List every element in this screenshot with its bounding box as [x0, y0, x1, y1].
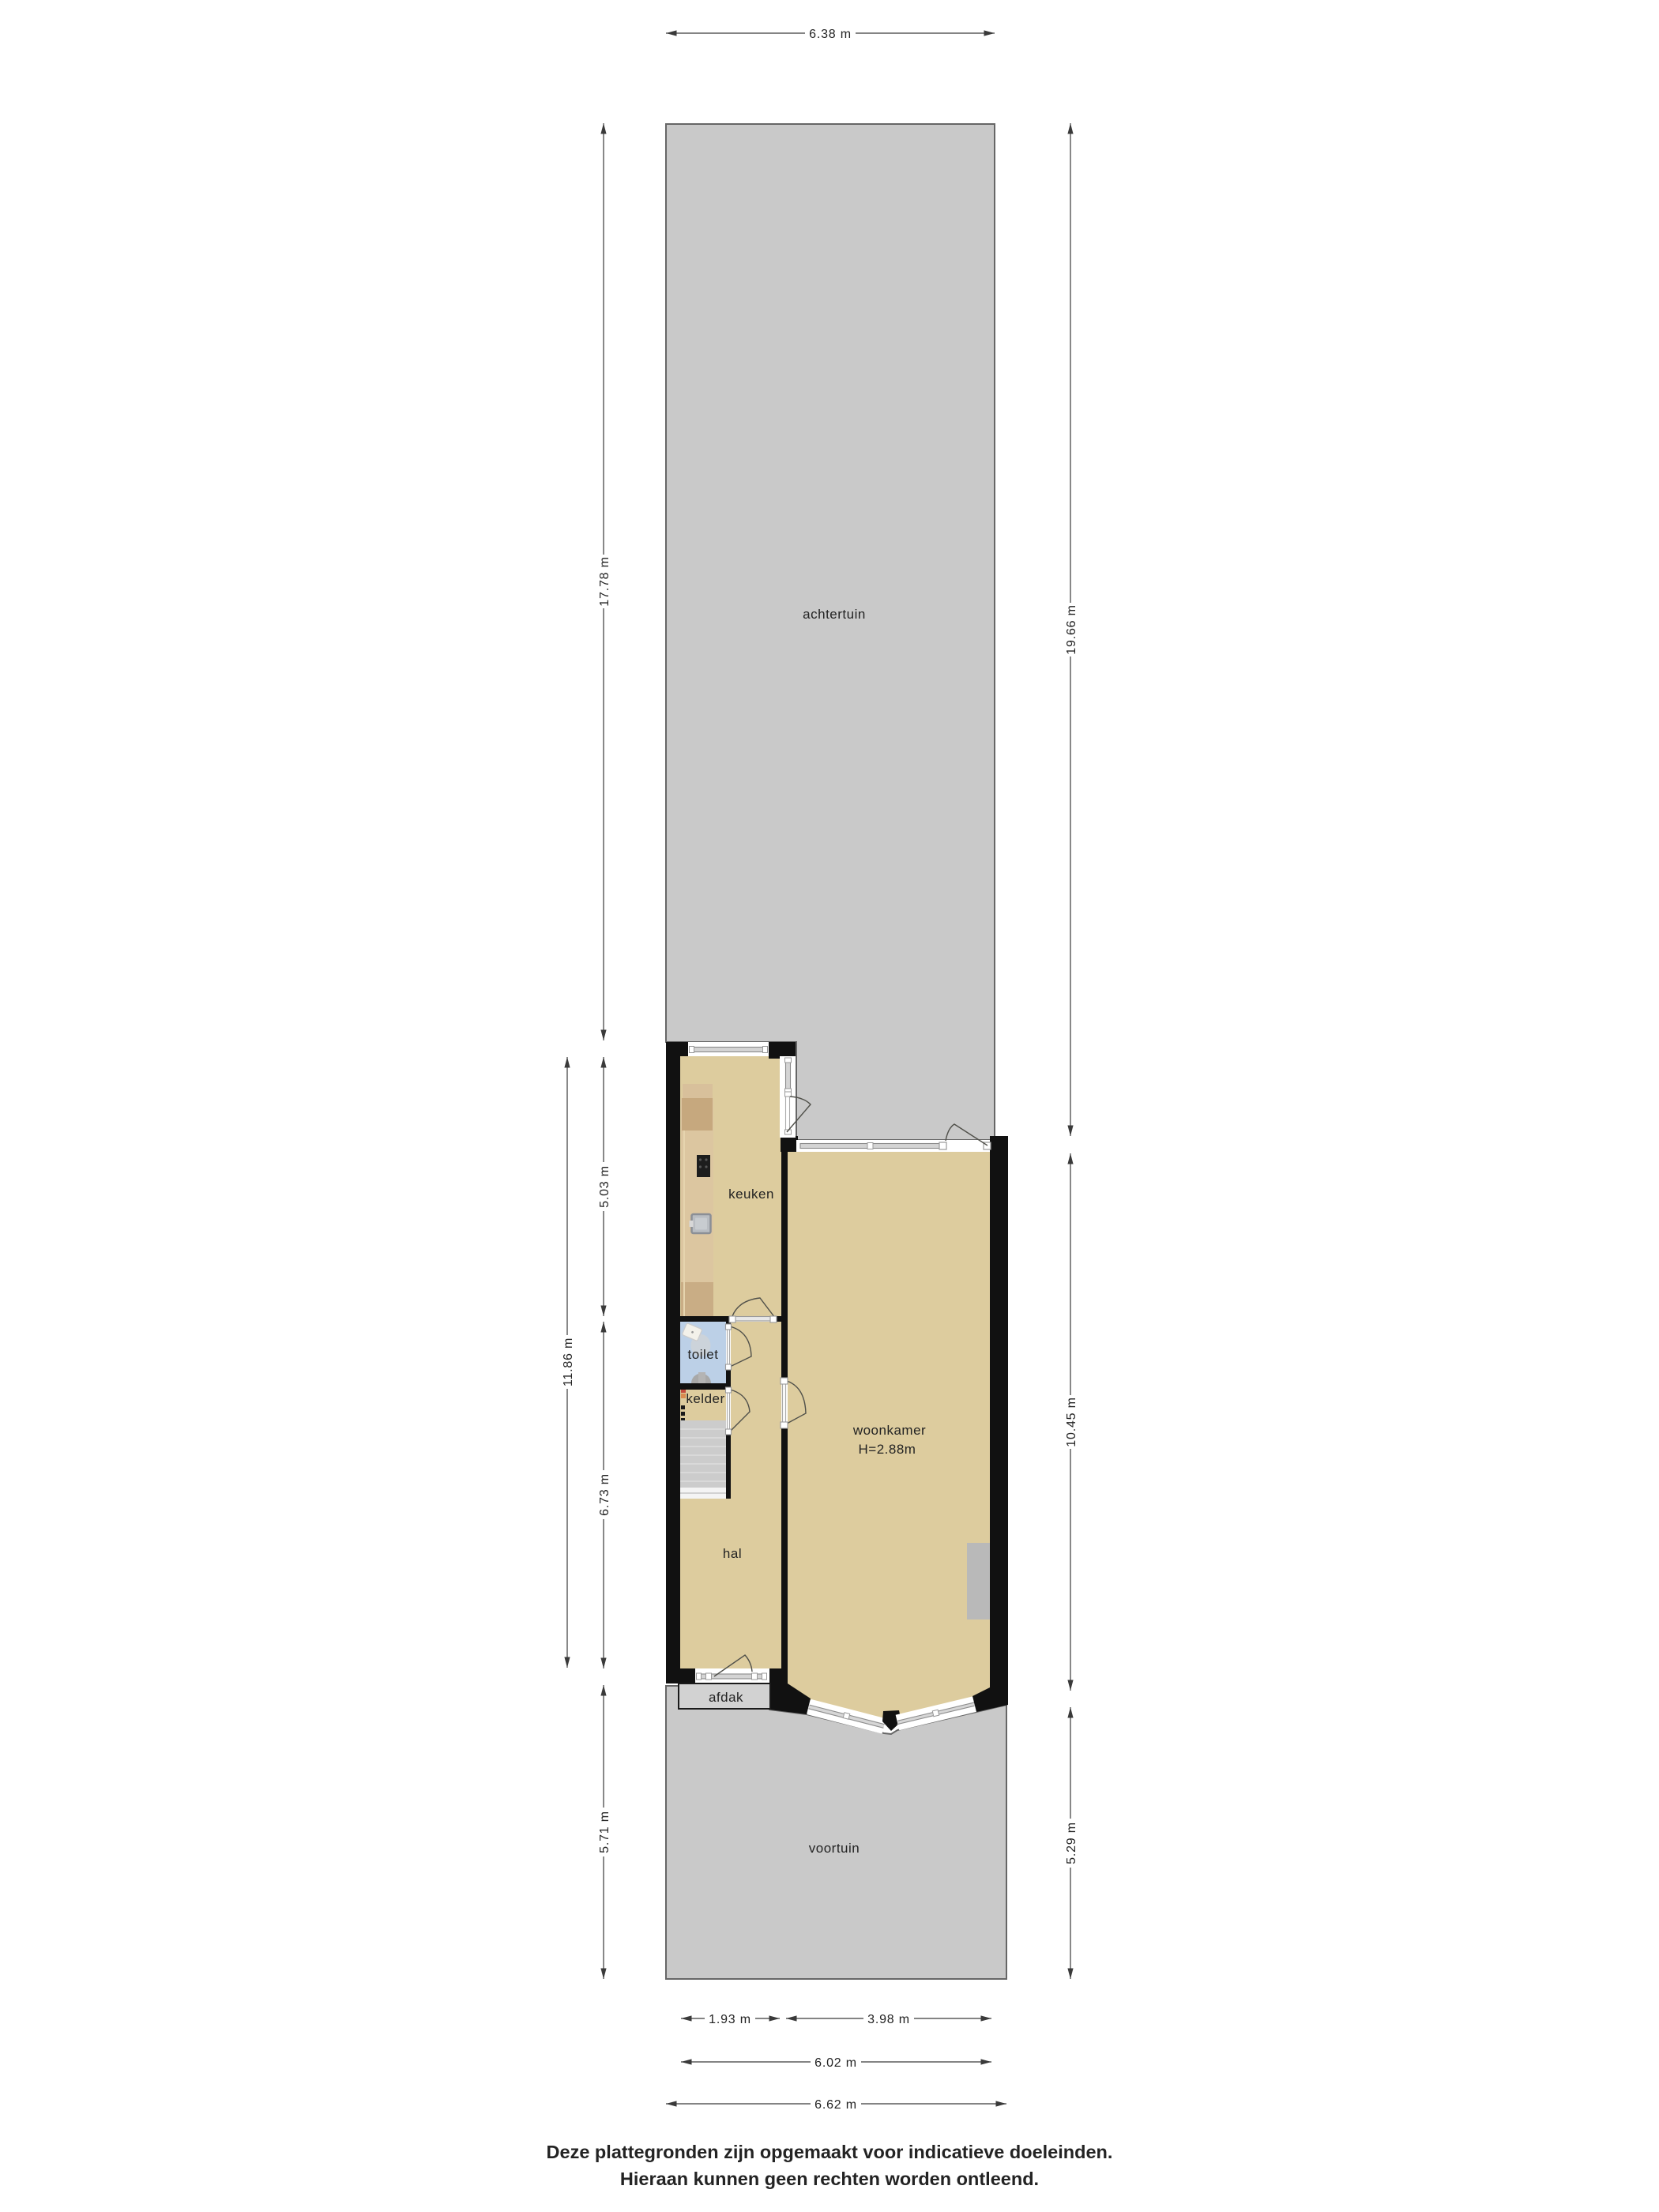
- svg-text:achtertuin: achtertuin: [803, 607, 866, 622]
- svg-text:6.02 m: 6.02 m: [814, 2056, 857, 2070]
- svg-text:voortuin: voortuin: [809, 1841, 860, 1856]
- svg-text:toilet: toilet: [688, 1347, 719, 1362]
- svg-text:afdak: afdak: [709, 1690, 743, 1705]
- svg-text:H=2.88m: H=2.88m: [859, 1442, 916, 1457]
- svg-text:11.86 m: 11.86 m: [562, 1337, 575, 1386]
- svg-text:1.93 m: 1.93 m: [709, 2013, 751, 2026]
- svg-text:6.38 m: 6.38 m: [809, 28, 852, 41]
- svg-text:19.66 m: 19.66 m: [1065, 604, 1078, 654]
- svg-text:5.71 m: 5.71 m: [598, 1811, 611, 1853]
- svg-text:6.62 m: 6.62 m: [814, 2098, 857, 2112]
- svg-text:Hieraan kunnen geen rechten wo: Hieraan kunnen geen rechten worden ontle…: [620, 2169, 1039, 2189]
- svg-text:Deze plattegronden zijn opgema: Deze plattegronden zijn opgemaakt voor i…: [547, 2142, 1113, 2162]
- svg-text:6.73 m: 6.73 m: [598, 1473, 611, 1516]
- svg-text:10.45 m: 10.45 m: [1065, 1397, 1078, 1446]
- svg-text:kelder: kelder: [686, 1391, 724, 1406]
- svg-text:5.29 m: 5.29 m: [1065, 1822, 1078, 1864]
- svg-text:3.98 m: 3.98 m: [867, 2013, 910, 2026]
- svg-text:keuken: keuken: [728, 1187, 774, 1202]
- svg-text:17.78 m: 17.78 m: [598, 556, 611, 606]
- svg-text:woonkamer: woonkamer: [852, 1423, 926, 1438]
- svg-text:5.03 m: 5.03 m: [598, 1165, 611, 1208]
- svg-text:hal: hal: [723, 1546, 742, 1561]
